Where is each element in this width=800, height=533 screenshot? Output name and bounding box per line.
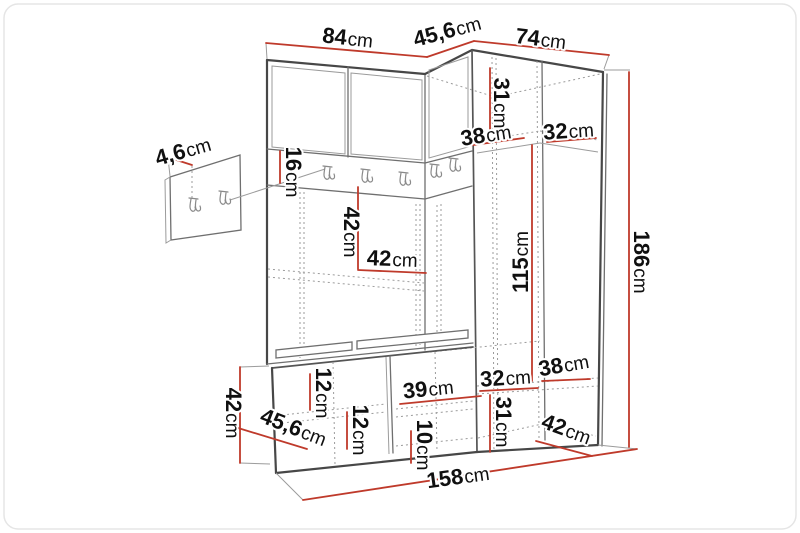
dim-label-total-height: 186cm — [629, 230, 654, 293]
dim-label-hanging-height: 115cm — [508, 231, 533, 293]
dim-label-total-width: 158cm — [425, 460, 491, 494]
dim-label-mid-height: 42cm — [339, 207, 364, 258]
coat-hook-icon — [323, 166, 335, 179]
dim-label-low-height-31: 31cm — [491, 397, 516, 448]
dimension-labels: 84cm 45,6cm 74cm 4,6cm 31cm 38cm 32cm 16… — [152, 10, 654, 494]
dim-label-rail-height: 16cm — [281, 147, 306, 198]
dim-label-bench-12a: 12cm — [311, 368, 336, 419]
bench-cushion-right — [357, 330, 468, 349]
coat-hook-icon — [430, 164, 442, 177]
shoe-bench — [272, 330, 477, 473]
dim-label-top-depth-corner: 45,6cm — [410, 10, 483, 52]
dim-label-bench-height: 42cm — [221, 388, 246, 439]
coat-rack-hooks — [323, 158, 461, 185]
top-cabinet-door-right — [351, 73, 422, 160]
dim-label-right-top-height: 31cm — [489, 78, 514, 129]
wardrobe-left-section — [267, 60, 473, 364]
coat-hook-icon — [361, 169, 373, 182]
detail-callout-line — [230, 169, 325, 200]
dim-label-mid-width: 42cm — [366, 245, 418, 272]
dim-label-bench-12b: 12cm — [348, 405, 373, 456]
dim-label-bench-width-39: 39cm — [402, 373, 455, 403]
dimension-diagram: 84cm 45,6cm 74cm 4,6cm 31cm 38cm 32cm 16… — [0, 0, 800, 533]
dim-label-shelf-32: 32cm — [542, 116, 594, 144]
coat-hook-icon — [399, 172, 411, 185]
product-dimension-image: 84cm 45,6cm 74cm 4,6cm 31cm 38cm 32cm 16… — [0, 0, 800, 533]
wardrobe-corner-section — [425, 50, 472, 345]
dim-label-bench-10: 10cm — [412, 420, 437, 471]
dim-label-top-width-left: 84cm — [321, 22, 374, 52]
dim-label-top-width-right: 74cm — [514, 23, 567, 54]
dim-label-panel-thickness: 4,6cm — [152, 131, 214, 171]
dim-label-shelf-38: 38cm — [459, 118, 513, 151]
coat-hook-icon — [449, 158, 461, 171]
top-cabinet-door-left — [272, 66, 345, 154]
dim-label-low-shelf-32: 32cm — [479, 363, 531, 391]
bench-cushion-left — [276, 342, 352, 358]
